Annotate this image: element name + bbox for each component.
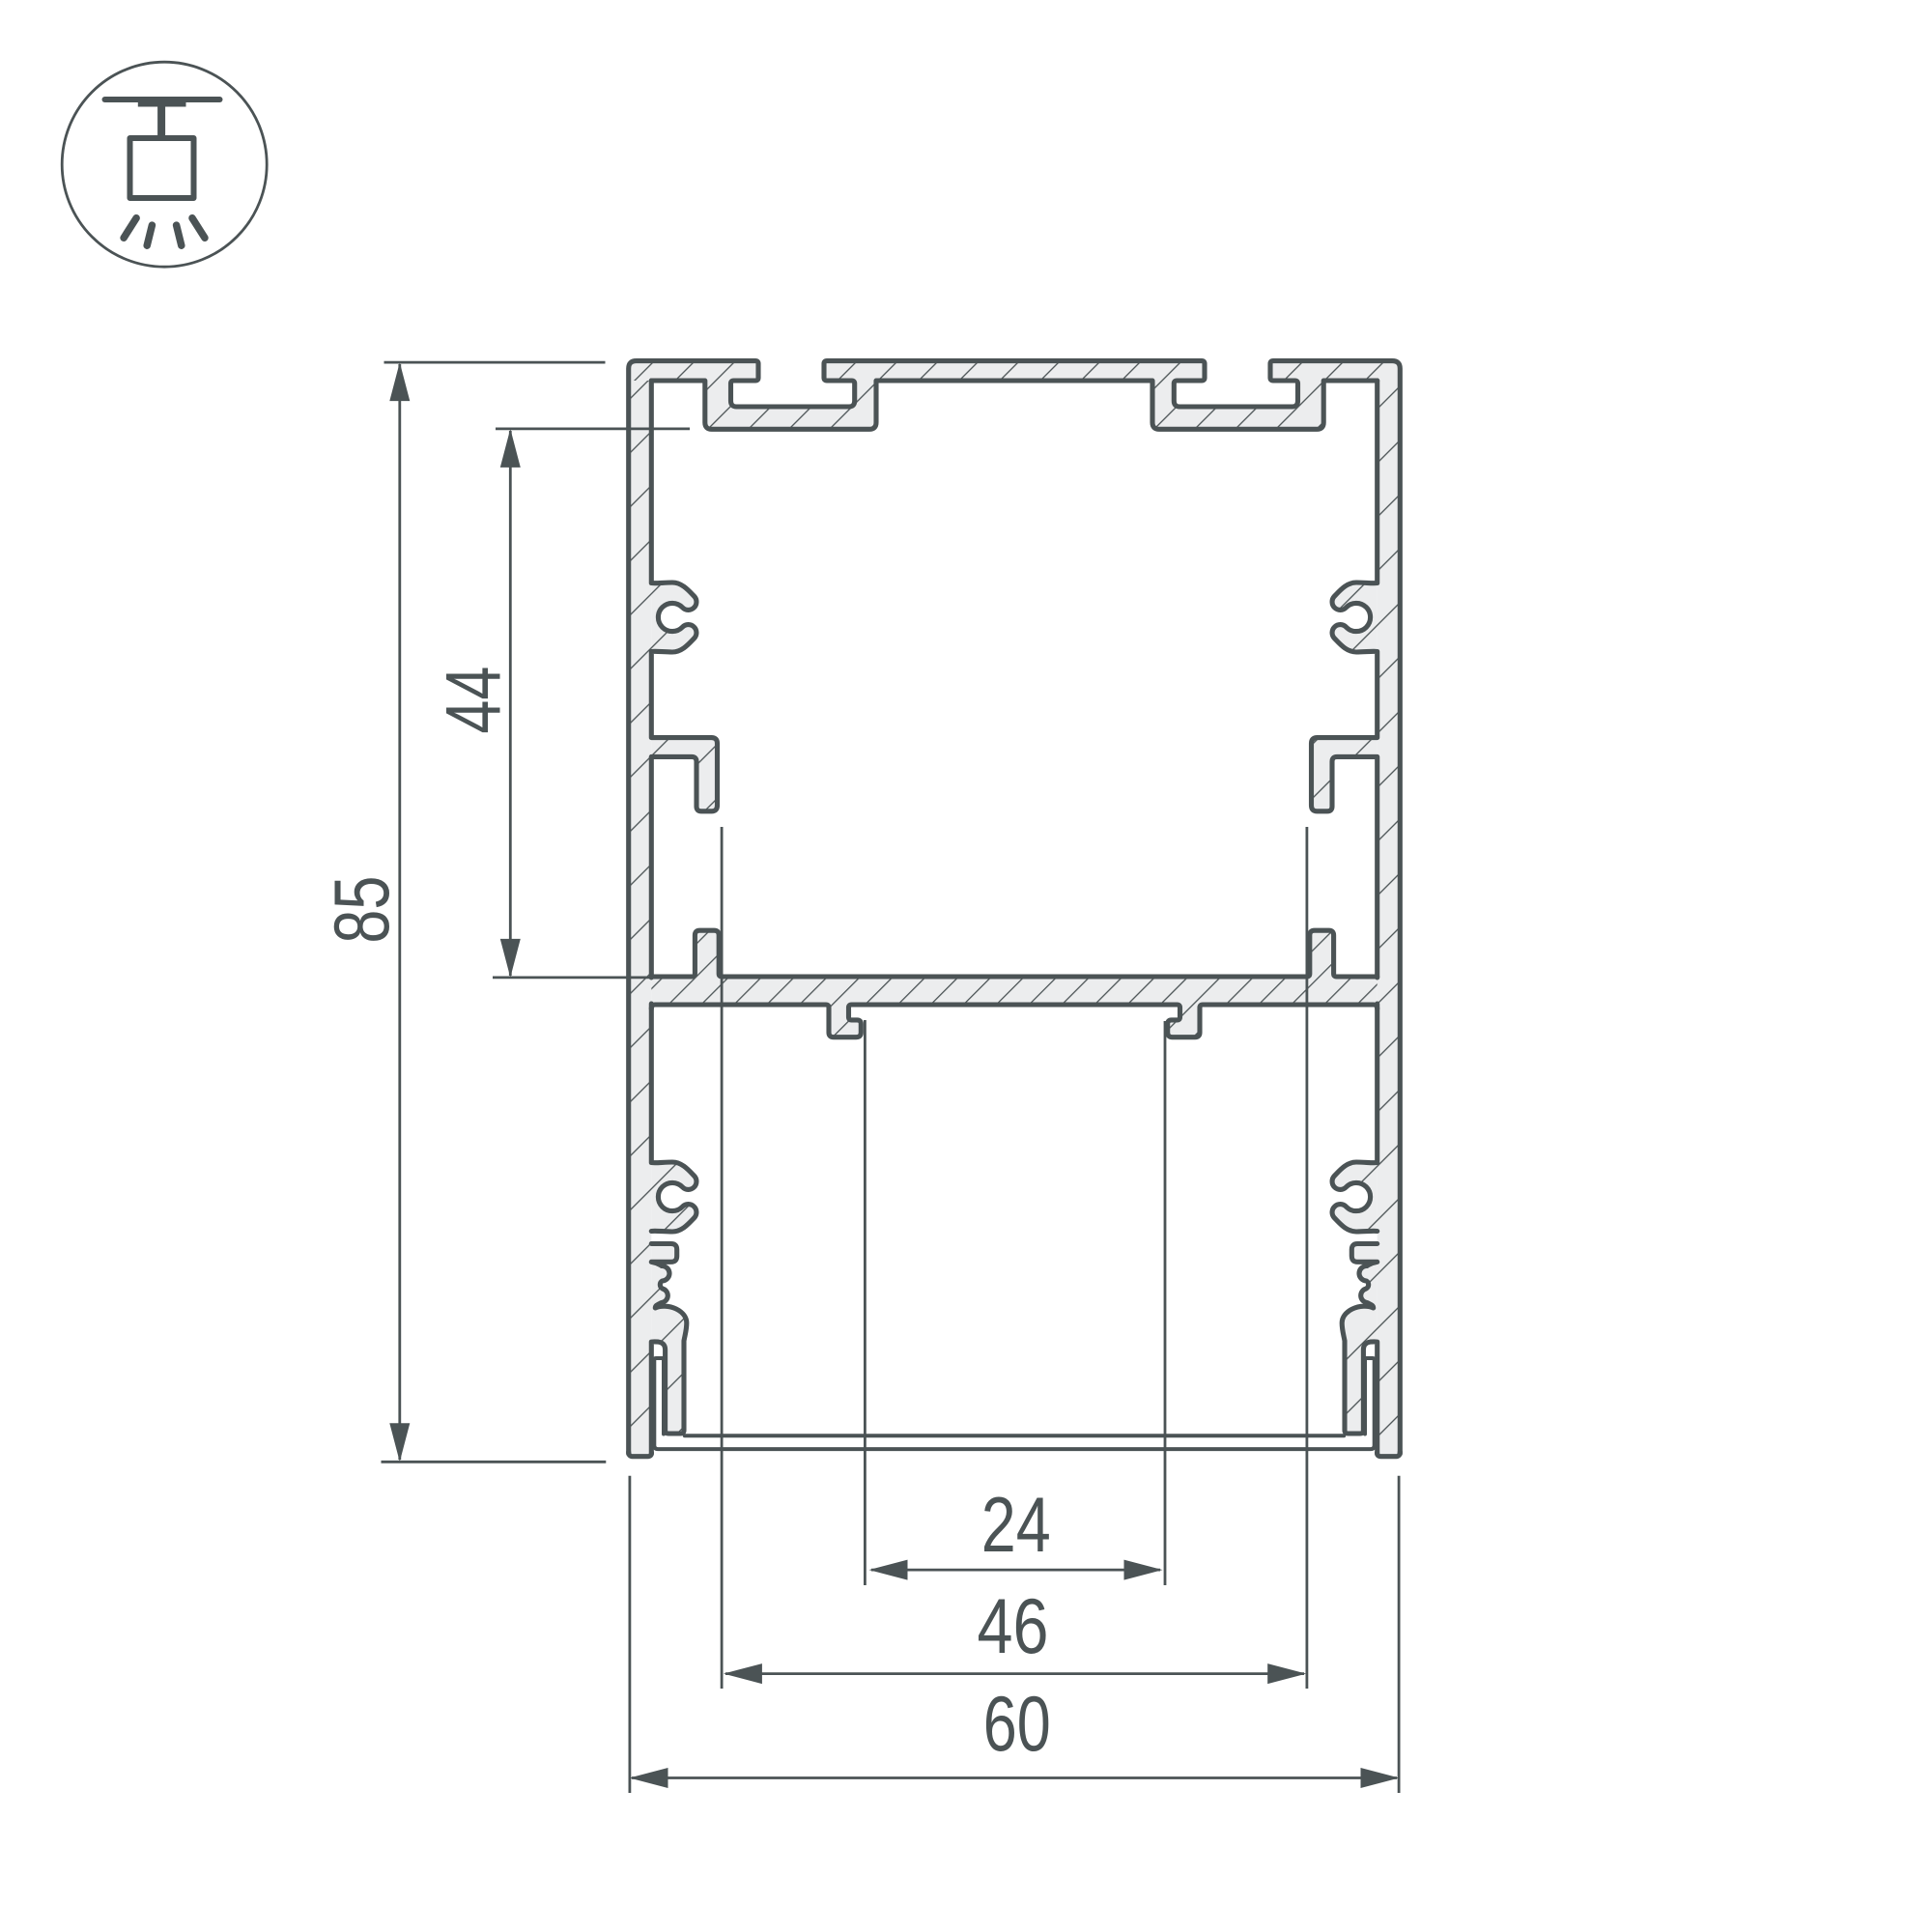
svg-text:60: 60 (983, 1681, 1051, 1768)
svg-text:24: 24 (981, 1482, 1051, 1569)
svg-text:44: 44 (431, 667, 518, 734)
svg-text:85: 85 (319, 876, 406, 944)
svg-text:46: 46 (978, 1583, 1049, 1670)
